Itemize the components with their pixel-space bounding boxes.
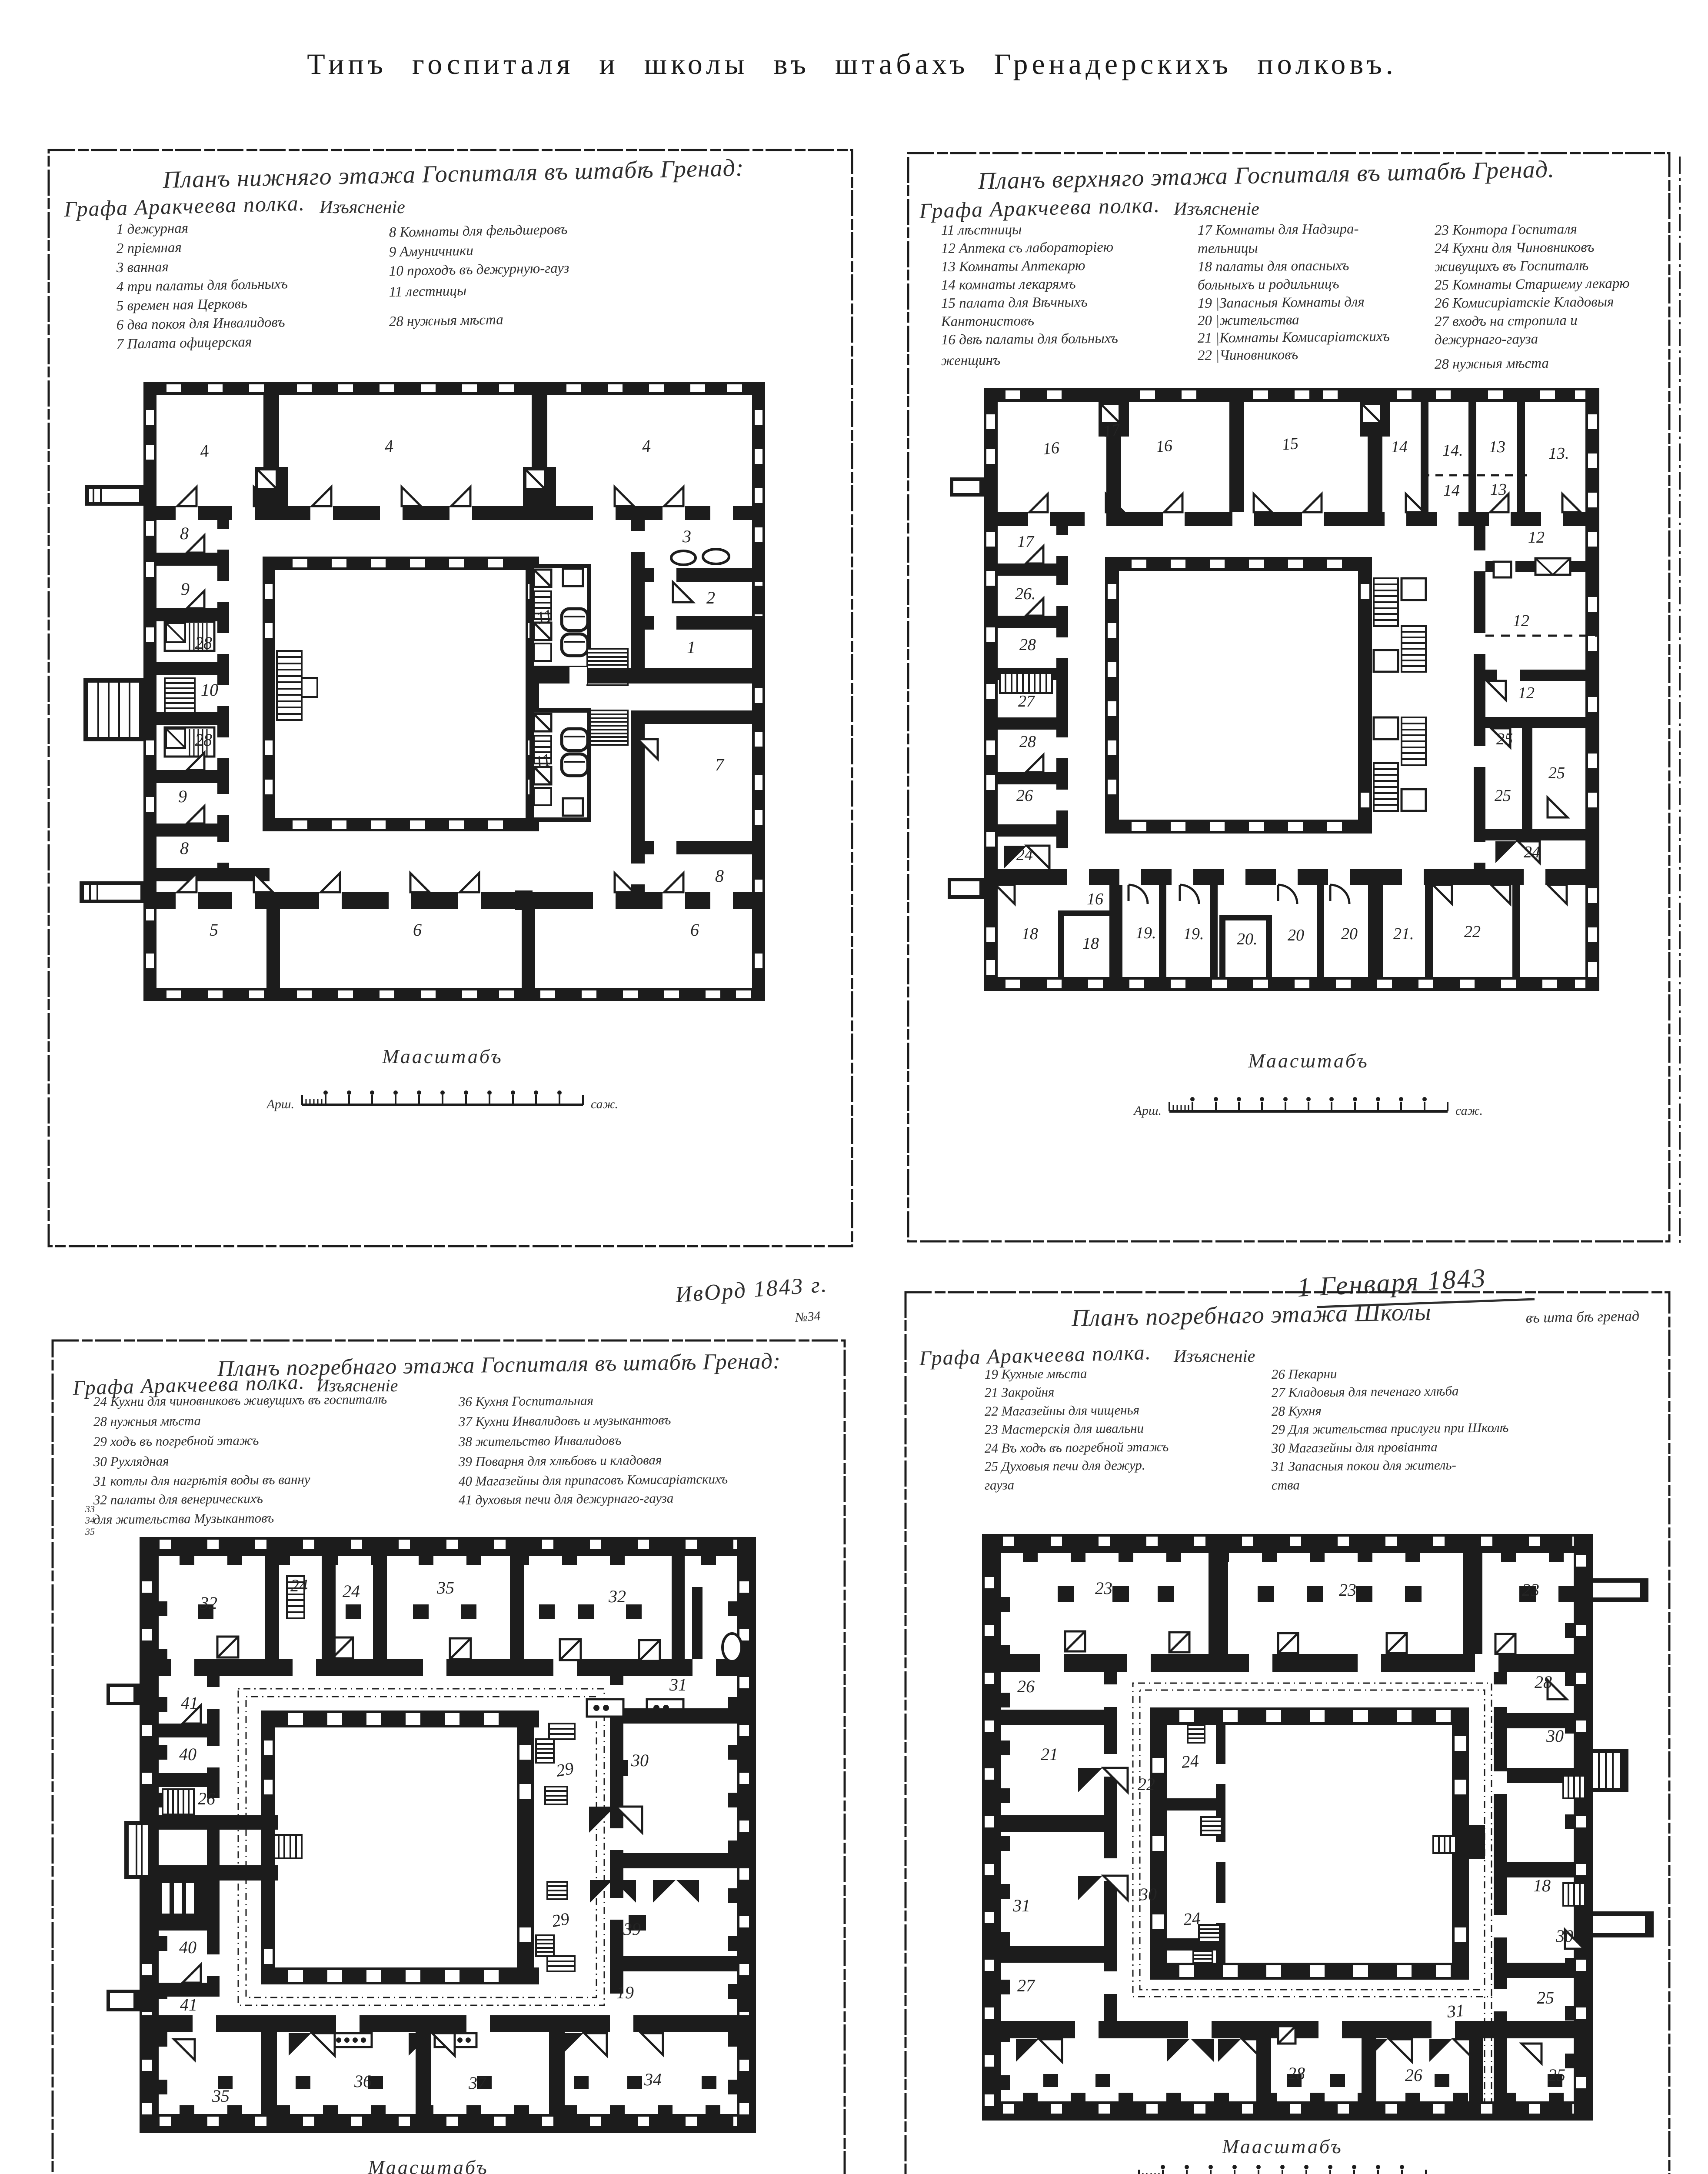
svg-text:тельницы: тельницы (1198, 240, 1258, 257)
svg-text:2: 2 (706, 588, 715, 607)
svg-text:11 лѣстницы: 11 лѣстницы (941, 222, 1022, 238)
svg-text:19: 19 (616, 1983, 634, 2002)
svg-text:дежурнаго-гауза: дежурнаго-гауза (1435, 331, 1538, 348)
svg-text:27: 27 (1017, 1976, 1035, 1995)
svg-text:саж.: саж. (1434, 2171, 1461, 2174)
svg-text:гауза: гауза (985, 1477, 1014, 1493)
svg-text:24 Кухни для Чиновниковъ: 24 Кухни для Чиновниковъ (1435, 240, 1595, 257)
svg-text:18: 18 (1022, 925, 1038, 943)
svg-text:24: 24 (290, 1576, 308, 1595)
svg-text:20.: 20. (1237, 930, 1258, 948)
svg-text:28: 28 (1019, 733, 1036, 751)
svg-text:5 времен ная Церковь: 5 времен ная Церковь (117, 296, 248, 314)
svg-text:32 палаты для венерическихъ: 32 палаты для венерическихъ (93, 1491, 263, 1507)
svg-text:Арш.: Арш. (1103, 2171, 1131, 2174)
svg-text:31: 31 (1012, 1896, 1030, 1915)
svg-text:18: 18 (1082, 934, 1099, 953)
svg-text:Кантонистовъ: Кантонистовъ (941, 313, 1034, 330)
svg-text:24 Кухни для чиновниковъ живу: 24 Кухни для чиновниковъ живущихъ въ гос… (93, 1391, 387, 1409)
svg-text:19.: 19. (1135, 924, 1156, 942)
svg-text:36 Кухня Госпитальная: 36 Кухня Госпитальная (458, 1393, 593, 1409)
svg-text:31 котлы для нагрѣтія воды въ: 31 котлы для нагрѣтія воды въ ванну (93, 1472, 310, 1489)
svg-text:30 Магазейны для провіанта: 30 Магазейны для провіанта (1271, 1439, 1438, 1456)
svg-text:35: 35 (212, 2086, 230, 2106)
svg-text:ства: ства (1272, 1477, 1300, 1493)
svg-text:30: 30 (1546, 1726, 1564, 1746)
svg-text:31 Запасныя покои для житель: 31 Запасныя покои для житель- (1271, 1457, 1456, 1474)
svg-text:живущихъ въ Госпиталѣ: живущихъ въ Госпиталѣ (1435, 258, 1589, 275)
svg-text:14: 14 (1443, 481, 1460, 500)
svg-text:28: 28 (195, 633, 212, 653)
svg-text:25: 25 (1495, 787, 1511, 805)
svg-text:Типъ госпиталя и школы въ: Типъ госпиталя и школы въ штабахъ Гренад… (307, 47, 1397, 80)
svg-text:7 Палата офицерская: 7 Палата офицерская (117, 334, 252, 352)
svg-text:22: 22 (1138, 1774, 1155, 1794)
svg-text:1: 1 (687, 637, 696, 657)
svg-text:9 Амуничники: 9 Амуничники (389, 243, 474, 260)
svg-text:6 два покоя для Инвалидовъ: 6 два покоя для Инвалидовъ (117, 314, 285, 333)
svg-text:25 Духовыя печи для дежур.: 25 Духовыя печи для дежур. (985, 1457, 1145, 1474)
svg-text:34: 34 (85, 1515, 95, 1526)
svg-text:саж.: саж. (591, 1097, 618, 1111)
svg-text:21 Закройня: 21 Закройня (985, 1384, 1055, 1400)
svg-text:8: 8 (715, 866, 724, 886)
svg-text:9: 9 (181, 579, 190, 599)
svg-text:22 Магазейны для чищенья: 22 Магазейны для чищенья (985, 1402, 1139, 1419)
svg-text:24: 24 (343, 1581, 360, 1601)
svg-text:30 Рухлядная: 30 Рухлядная (93, 1453, 169, 1469)
svg-text:41 духовыя печи для дежурнаго: 41 духовыя печи для дежурнаго-гауза (459, 1490, 674, 1507)
svg-text:26 Пекарни: 26 Пекарни (1272, 1366, 1337, 1382)
svg-text:28 Кухня: 28 Кухня (1272, 1403, 1322, 1419)
svg-text:28: 28 (195, 730, 212, 750)
svg-text:женщинъ: женщинъ (941, 353, 1001, 369)
svg-text:12: 12 (1528, 528, 1545, 547)
svg-text:38 жительство Инвалидовъ: 38 жительство Инвалидовъ (458, 1433, 622, 1449)
svg-text:23 Контора Госпиталя: 23 Контора Госпиталя (1435, 221, 1577, 238)
svg-text:36: 36 (354, 2071, 372, 2091)
svg-text:6: 6 (690, 920, 699, 940)
svg-text:26: 26 (1405, 2065, 1422, 2085)
svg-text:32: 32 (200, 1593, 217, 1613)
svg-text:4: 4 (384, 436, 394, 456)
svg-text:32: 32 (608, 1587, 626, 1606)
svg-text:18: 18 (1533, 1876, 1551, 1895)
svg-text:24: 24 (1524, 843, 1540, 861)
svg-text:28: 28 (1535, 1672, 1552, 1692)
svg-text:29: 29 (550, 1909, 571, 1931)
svg-text:17 Комнаты для Надзира-: 17 Комнаты для Надзира- (1198, 221, 1359, 238)
svg-text:13: 13 (1489, 438, 1505, 456)
svg-text:25 Комнаты Старшему лекарю: 25 Комнаты Старшему лекарю (1435, 276, 1630, 293)
svg-text:8: 8 (180, 523, 189, 543)
svg-text:для жительства Музыкантовъ: для жительства Музыкантовъ (93, 1510, 274, 1527)
svg-text:14: 14 (1391, 438, 1408, 456)
svg-text:4: 4 (641, 436, 652, 456)
svg-text:37 Кухни Инвалидовъ и музыкан: 37 Кухни Инвалидовъ и музыкантовъ (458, 1412, 671, 1429)
svg-text:31: 31 (1446, 2001, 1465, 2021)
svg-text:25: 25 (1548, 2065, 1565, 2085)
svg-text:Маасштабъ: Маасштабъ (367, 2156, 488, 2174)
svg-text:14.: 14. (1442, 441, 1463, 460)
svg-text:26.: 26. (1015, 585, 1036, 603)
svg-text:№34: №34 (794, 1309, 821, 1325)
svg-text:40: 40 (179, 1744, 196, 1764)
svg-text:23: 23 (1095, 1578, 1112, 1598)
svg-text:28 нужныя мѣста: 28 нужныя мѣста (93, 1413, 201, 1429)
svg-text:29 ходъ въ погребной этажъ: 29 ходъ въ погребной этажъ (93, 1433, 259, 1449)
svg-text:24: 24 (1016, 846, 1033, 864)
svg-text:26: 26 (1017, 1677, 1035, 1696)
svg-text:Маасштабъ: Маасштабъ (1222, 2135, 1342, 2157)
svg-text:24: 24 (1182, 1908, 1202, 1929)
svg-text:16: 16 (1155, 437, 1173, 456)
svg-text:въ шта бѣ гренад: въ шта бѣ гренад (1525, 1308, 1639, 1326)
svg-text:28 нужныя мѣста: 28 нужныя мѣста (1435, 356, 1549, 372)
svg-text:27 Кладовыя для печенаго хлѣ: 27 Кладовыя для печенаго хлѣба (1272, 1383, 1459, 1400)
svg-text:15: 15 (1281, 434, 1299, 454)
svg-text:21 |Комнаты Комисаріатскихъ: 21 |Комнаты Комисаріатскихъ (1198, 329, 1390, 346)
svg-text:Изъясненіе: Изъясненіе (1173, 199, 1259, 219)
svg-text:10 проходъ въ дежурную-гауз: 10 проходъ въ дежурную-гауз (389, 260, 569, 279)
svg-text:11 лестницы: 11 лестницы (389, 283, 467, 300)
svg-text:39 Поварня для хлѣбовъ и клад: 39 Поварня для хлѣбовъ и кладовая (458, 1452, 662, 1469)
svg-text:6: 6 (413, 920, 422, 940)
svg-text:35: 35 (85, 1526, 95, 1537)
svg-text:13: 13 (1490, 480, 1507, 499)
svg-text:40 Магазейны для припасовъ Ко: 40 Магазейны для припасовъ Комисаріатски… (459, 1471, 728, 1489)
svg-text:37: 37 (468, 2073, 487, 2093)
svg-text:35: 35 (436, 1578, 454, 1597)
svg-text:10: 10 (201, 680, 218, 700)
svg-text:13.: 13. (1548, 444, 1569, 463)
svg-text:33: 33 (85, 1504, 95, 1514)
svg-text:16: 16 (1087, 890, 1103, 908)
svg-text:Маасштабъ: Маасштабъ (382, 1045, 503, 1067)
svg-text:25: 25 (1548, 764, 1565, 782)
svg-text:24: 24 (1181, 1751, 1200, 1772)
svg-text:31: 31 (669, 1675, 687, 1694)
svg-text:16 двѣ палаты для больныхъ: 16 двѣ палаты для больныхъ (941, 330, 1118, 348)
svg-text:8 Комнаты для фельдшеровъ: 8 Комнаты для фельдшеровъ (389, 222, 568, 240)
svg-text:28 нужныя мѣста: 28 нужныя мѣста (389, 312, 503, 330)
svg-text:27: 27 (1018, 692, 1035, 710)
svg-text:30: 30 (631, 1751, 649, 1770)
svg-text:41: 41 (180, 1995, 197, 2014)
svg-text:20: 20 (1288, 926, 1304, 944)
svg-text:41: 41 (181, 1693, 198, 1713)
svg-text:больныхъ и родильницъ: больныхъ и родильницъ (1198, 276, 1339, 293)
svg-text:23 Мастерскія для швальни: 23 Мастерскія для швальни (985, 1420, 1144, 1437)
svg-text:16: 16 (1042, 439, 1060, 458)
svg-text:Маасштабъ: Маасштабъ (1248, 1050, 1368, 1072)
svg-text:26 Комисиріатскіе Кладовыя: 26 Комисиріатскіе Кладовыя (1435, 294, 1614, 311)
svg-text:25: 25 (1496, 730, 1513, 748)
svg-text:23: 23 (1522, 1580, 1539, 1600)
svg-text:1 дежурная: 1 дежурная (117, 220, 189, 237)
svg-text:Арш.: Арш. (1133, 1104, 1162, 1118)
svg-text:12 Аптека съ лабораторіею: 12 Аптека съ лабораторіею (941, 240, 1114, 257)
svg-text:19 |Запасныя Комнаты для: 19 |Запасныя Комнаты для (1198, 294, 1365, 311)
svg-text:21: 21 (1041, 1744, 1058, 1764)
svg-text:21.: 21. (1393, 925, 1414, 943)
svg-text:20: 20 (1341, 925, 1358, 943)
svg-text:12: 12 (1513, 612, 1529, 630)
svg-text:39: 39 (623, 1919, 641, 1939)
svg-text:8: 8 (180, 838, 189, 858)
svg-text:29: 29 (555, 1758, 575, 1781)
svg-text:24 Въ ходъ въ погребной этажъ: 24 Въ ходъ въ погребной этажъ (985, 1439, 1169, 1456)
svg-text:29 Для жительства прислуги п: 29 Для жительства прислуги при Школѣ (1272, 1420, 1509, 1437)
svg-text:26: 26 (1016, 787, 1033, 805)
svg-text:40: 40 (179, 1937, 196, 1957)
svg-text:5: 5 (210, 920, 218, 940)
svg-text:4 три палаты для больныхъ: 4 три палаты для больныхъ (117, 276, 288, 295)
svg-text:28: 28 (1019, 636, 1036, 654)
svg-text:17: 17 (1017, 533, 1035, 551)
svg-text:19 Кухные мѣста: 19 Кухные мѣста (985, 1366, 1087, 1382)
svg-text:13 Комнаты Аптекарю: 13 Комнаты Аптекарю (941, 258, 1085, 275)
svg-text:20 |жительства: 20 |жительства (1198, 312, 1299, 329)
svg-text:19.: 19. (1183, 925, 1204, 943)
svg-text:30: 30 (1555, 1926, 1573, 1946)
svg-text:15 палата для Вѣчныхъ: 15 палата для Вѣчныхъ (941, 294, 1088, 311)
svg-text:30: 30 (1139, 1884, 1157, 1904)
svg-text:34: 34 (644, 2070, 662, 2089)
svg-text:22 |Чиновниковъ: 22 |Чиновниковъ (1198, 347, 1298, 363)
svg-text:12: 12 (1518, 684, 1535, 702)
svg-text:3: 3 (682, 527, 691, 546)
svg-text:23: 23 (1339, 1580, 1356, 1600)
svg-text:26: 26 (198, 1789, 215, 1808)
svg-text:7: 7 (715, 755, 725, 774)
svg-text:14 комнаты лекарямъ: 14 комнаты лекарямъ (941, 276, 1076, 293)
svg-text:18 палаты для опасныхъ: 18 палаты для опасныхъ (1198, 258, 1349, 275)
svg-text:Изъясненіе: Изъясненіе (319, 197, 405, 217)
svg-text:27 входъ на стропила и: 27 входъ на стропила и (1435, 313, 1578, 330)
svg-text:3 ванная: 3 ванная (116, 259, 169, 276)
svg-text:28: 28 (1288, 2064, 1305, 2083)
svg-text:2 пріемная: 2 пріемная (117, 240, 182, 257)
svg-text:22: 22 (1464, 923, 1481, 941)
svg-text:Арш.: Арш. (266, 1097, 294, 1111)
svg-text:саж.: саж. (1455, 1104, 1483, 1118)
svg-text:9: 9 (178, 787, 187, 806)
svg-text:25: 25 (1537, 1988, 1554, 2007)
svg-text:Изъясненіе: Изъясненіе (1173, 1346, 1255, 1366)
